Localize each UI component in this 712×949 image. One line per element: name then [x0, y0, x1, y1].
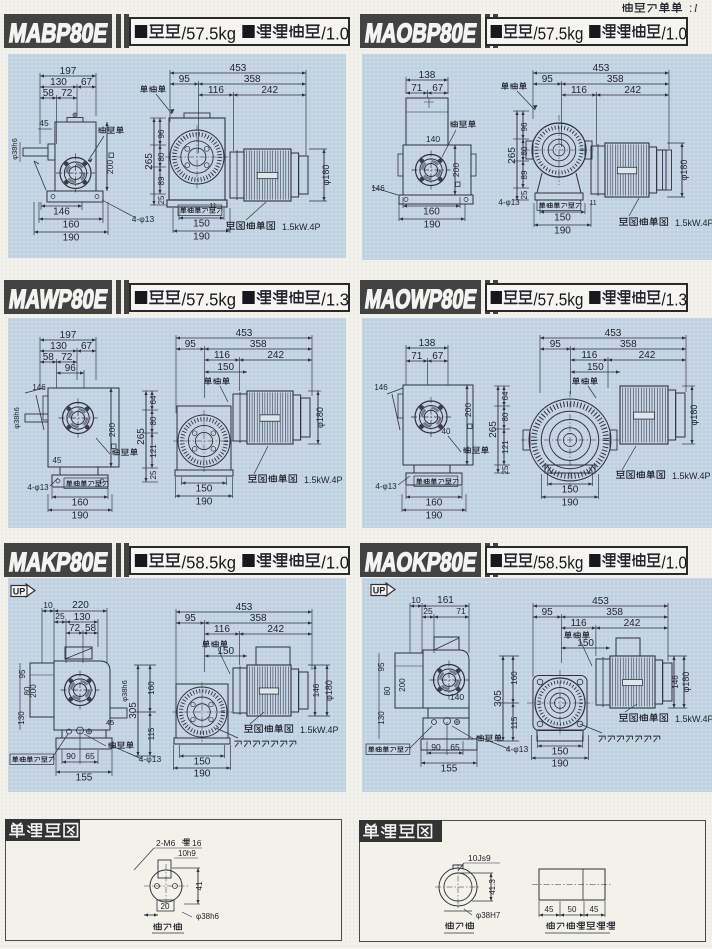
svg-text:45: 45 [39, 118, 49, 128]
svg-text:φ180: φ180 [315, 407, 325, 428]
svg-text:160: 160 [147, 681, 156, 695]
svg-text:1.5kW.4P: 1.5kW.4P [675, 714, 712, 724]
svg-text:1.5kW.4P: 1.5kW.4P [282, 222, 321, 232]
svg-text:138: 138 [419, 70, 436, 81]
svg-text:197: 197 [60, 330, 77, 341]
svg-text:138: 138 [419, 338, 436, 349]
svg-text:358: 358 [620, 339, 637, 350]
svg-text:96: 96 [157, 129, 166, 138]
svg-text:58: 58 [85, 623, 97, 634]
svg-text:64: 64 [149, 395, 158, 404]
svg-text:358: 358 [250, 339, 267, 350]
svg-text:155: 155 [76, 773, 93, 784]
svg-text:45: 45 [545, 905, 554, 914]
svg-text:/1.3: /1.3 [321, 290, 348, 309]
svg-text:242: 242 [624, 85, 641, 96]
svg-text:25: 25 [149, 470, 158, 479]
svg-text:116: 116 [571, 85, 587, 96]
svg-text:160: 160 [72, 498, 89, 509]
svg-text:190: 190 [554, 226, 571, 237]
svg-text:φ38h6: φ38h6 [120, 680, 129, 702]
svg-text:/1.0: /1.0 [662, 554, 686, 573]
svg-text:72: 72 [61, 88, 73, 99]
svg-text:146: 146 [371, 184, 385, 193]
svg-text:305: 305 [493, 690, 504, 707]
svg-text:25: 25 [520, 190, 529, 199]
svg-text:190: 190 [63, 233, 80, 244]
svg-text:20: 20 [161, 902, 170, 911]
svg-text:358: 358 [606, 607, 623, 618]
svg-text:160: 160 [423, 207, 440, 218]
svg-text:64: 64 [501, 391, 510, 400]
svg-text:242: 242 [639, 350, 656, 361]
svg-text:l: l [694, 1, 698, 15]
svg-text:96: 96 [520, 122, 529, 131]
svg-text:146: 146 [32, 383, 46, 392]
svg-text:95: 95 [179, 74, 191, 85]
svg-text:4-φ13: 4-φ13 [375, 482, 397, 491]
svg-text:UP: UP [373, 586, 386, 596]
svg-text:MAOKP80E: MAOKP80E [363, 547, 478, 577]
svg-text:41.3: 41.3 [488, 879, 497, 895]
svg-text:2-M6: 2-M6 [156, 838, 176, 848]
svg-text:71: 71 [456, 606, 466, 616]
svg-text:65: 65 [85, 751, 95, 761]
svg-text:95: 95 [185, 613, 197, 624]
svg-text:265: 265 [136, 428, 147, 445]
svg-text:80: 80 [501, 412, 510, 421]
svg-text:116: 116 [208, 85, 224, 96]
svg-text:358: 358 [607, 74, 624, 85]
svg-text:140: 140 [426, 134, 440, 144]
svg-text:190: 190 [562, 498, 579, 509]
svg-text:80: 80 [149, 416, 158, 425]
svg-text:10h9: 10h9 [178, 849, 196, 858]
svg-text:116: 116 [214, 624, 230, 635]
svg-text:150: 150 [587, 362, 604, 373]
svg-text:95: 95 [377, 662, 386, 671]
svg-text:150: 150 [552, 747, 569, 758]
svg-text:MAKP80E: MAKP80E [7, 547, 109, 577]
svg-text:80: 80 [157, 152, 166, 161]
svg-text:200: 200 [398, 678, 407, 692]
svg-text:4-φ13: 4-φ13 [506, 744, 529, 754]
svg-text:453: 453 [592, 596, 609, 607]
svg-text:453: 453 [236, 328, 253, 339]
svg-text:φ180: φ180 [679, 160, 689, 181]
svg-text:90: 90 [66, 751, 76, 761]
svg-text:160: 160 [426, 498, 443, 509]
svg-text:10: 10 [411, 595, 421, 605]
svg-text:200: 200 [107, 423, 117, 437]
svg-text:45: 45 [53, 456, 62, 465]
svg-text:1.5kW.4P: 1.5kW.4P [300, 725, 339, 735]
svg-text:200: 200 [463, 403, 473, 417]
svg-text:φ180: φ180 [689, 405, 699, 426]
svg-text:67: 67 [81, 77, 93, 88]
svg-text:146: 146 [671, 675, 680, 689]
svg-text:150: 150 [194, 757, 211, 768]
svg-text:190: 190 [193, 232, 210, 243]
svg-text:190: 190 [424, 220, 441, 231]
svg-text:130: 130 [74, 612, 91, 623]
svg-text:150: 150 [193, 219, 210, 230]
svg-text:115: 115 [147, 727, 156, 740]
svg-text:220: 220 [72, 600, 89, 611]
svg-text:67: 67 [432, 351, 444, 362]
svg-text:41: 41 [195, 881, 204, 890]
svg-text:MABP80E: MABP80E [7, 18, 109, 48]
svg-text:45: 45 [106, 718, 114, 727]
svg-text:95: 95 [185, 339, 197, 350]
svg-text:11: 11 [589, 200, 596, 207]
svg-text:16: 16 [192, 838, 202, 848]
svg-text:/57.5kg: /57.5kg [181, 290, 236, 309]
svg-text:4-φ13: 4-φ13 [132, 214, 155, 224]
svg-text:150: 150 [196, 484, 213, 495]
svg-text:89: 89 [520, 170, 529, 179]
svg-text:φ38h6: φ38h6 [12, 407, 21, 429]
svg-text:130: 130 [50, 341, 67, 352]
svg-text:95: 95 [550, 339, 562, 350]
svg-text:φ38h6: φ38h6 [196, 912, 220, 921]
svg-text:/57.5kg: /57.5kg [533, 291, 583, 310]
svg-text:/1.0: /1.0 [662, 25, 686, 44]
svg-text:72: 72 [61, 352, 73, 363]
svg-text:/1.0: /1.0 [321, 553, 348, 572]
svg-text:160: 160 [510, 671, 519, 685]
svg-text:φ180: φ180 [324, 680, 334, 701]
svg-text:200: 200 [451, 163, 461, 177]
svg-text:130: 130 [17, 711, 26, 725]
svg-text:305: 305 [128, 702, 139, 719]
svg-text:MAOWP80E: MAOWP80E [363, 284, 478, 314]
svg-text:10: 10 [43, 600, 53, 610]
svg-text:96: 96 [65, 363, 77, 374]
svg-text:242: 242 [624, 618, 641, 629]
svg-text:/1.3: /1.3 [662, 291, 686, 310]
svg-text:161: 161 [437, 595, 454, 606]
svg-text:25: 25 [157, 195, 166, 204]
svg-text:190: 190 [72, 511, 89, 522]
svg-text:146: 146 [312, 683, 321, 697]
svg-text:90: 90 [431, 742, 441, 752]
svg-text:150: 150 [562, 485, 579, 496]
svg-text:197: 197 [60, 66, 77, 77]
svg-text:45: 45 [590, 905, 599, 914]
svg-text:65: 65 [450, 742, 460, 752]
svg-text:67: 67 [432, 83, 444, 94]
svg-text:MAOBP80E: MAOBP80E [363, 18, 478, 48]
svg-text:116: 116 [571, 618, 587, 629]
svg-text:80: 80 [23, 686, 32, 695]
svg-text:146: 146 [374, 383, 388, 392]
svg-text:95: 95 [542, 607, 554, 618]
svg-text:40: 40 [442, 427, 451, 436]
svg-text:160: 160 [63, 220, 80, 231]
svg-text:4-φ13: 4-φ13 [498, 198, 520, 207]
svg-text:130: 130 [377, 711, 386, 725]
svg-text:453: 453 [593, 63, 610, 74]
svg-text:10Js9: 10Js9 [468, 853, 491, 863]
svg-text:89: 89 [157, 176, 166, 185]
svg-text:UP: UP [13, 587, 26, 597]
svg-text:φ38H7: φ38H7 [476, 911, 501, 920]
svg-text:121: 121 [501, 440, 510, 454]
svg-text:155: 155 [441, 764, 458, 775]
svg-text:95: 95 [542, 74, 554, 85]
svg-text:25: 25 [55, 611, 65, 621]
svg-text:150: 150 [577, 638, 594, 649]
svg-text:/58.5kg: /58.5kg [533, 554, 583, 573]
svg-text:4-φ13: 4-φ13 [27, 483, 49, 492]
svg-text:/57.5kg: /57.5kg [181, 24, 236, 43]
svg-text:71: 71 [411, 83, 423, 94]
svg-text:150: 150 [217, 646, 234, 657]
svg-text:453: 453 [605, 328, 622, 339]
svg-text::: : [689, 1, 692, 15]
svg-text:116: 116 [214, 350, 230, 361]
svg-text:130: 130 [50, 77, 67, 88]
svg-text:71: 71 [411, 351, 423, 362]
svg-text:/58.5kg: /58.5kg [181, 553, 236, 572]
svg-text:67: 67 [81, 341, 93, 352]
svg-text:116: 116 [581, 350, 597, 361]
svg-text:MAWP80E: MAWP80E [7, 284, 109, 314]
svg-text:72: 72 [69, 623, 81, 634]
svg-text:11: 11 [209, 203, 216, 210]
svg-text:242: 242 [267, 624, 284, 635]
svg-text:242: 242 [267, 350, 284, 361]
svg-text:50: 50 [568, 905, 577, 914]
svg-text:190: 190 [194, 769, 211, 780]
svg-text:358: 358 [244, 74, 261, 85]
svg-text:25: 25 [423, 606, 433, 616]
svg-text:1.5kW.4P: 1.5kW.4P [304, 475, 343, 485]
svg-text:1.5kW.4P: 1.5kW.4P [672, 471, 711, 481]
svg-text:358: 358 [250, 613, 267, 624]
svg-text:/1.0: /1.0 [321, 24, 348, 43]
svg-text:58: 58 [43, 88, 55, 99]
svg-text:φ180: φ180 [321, 165, 331, 186]
svg-text:95: 95 [18, 669, 27, 678]
svg-text:453: 453 [236, 602, 253, 613]
svg-text:200: 200 [105, 160, 115, 174]
svg-text:146: 146 [53, 207, 70, 218]
svg-text:1.5kW.4P: 1.5kW.4P [675, 218, 712, 228]
svg-text:φ38h6: φ38h6 [10, 138, 19, 160]
svg-text:190: 190 [196, 497, 213, 508]
svg-text:150: 150 [554, 213, 571, 224]
svg-text:/57.5kg: /57.5kg [533, 25, 583, 44]
svg-text:190: 190 [426, 511, 443, 522]
svg-text:φ180: φ180 [681, 672, 691, 693]
svg-text:453: 453 [230, 63, 247, 74]
svg-text:80: 80 [383, 686, 392, 695]
svg-text:121: 121 [149, 444, 158, 458]
svg-text:115: 115 [510, 716, 519, 729]
svg-text:242: 242 [261, 85, 278, 96]
svg-text:190: 190 [552, 759, 569, 770]
svg-text:140: 140 [450, 692, 464, 702]
svg-text:150: 150 [217, 362, 234, 373]
svg-text:58: 58 [43, 352, 55, 363]
svg-text:80: 80 [520, 146, 529, 155]
